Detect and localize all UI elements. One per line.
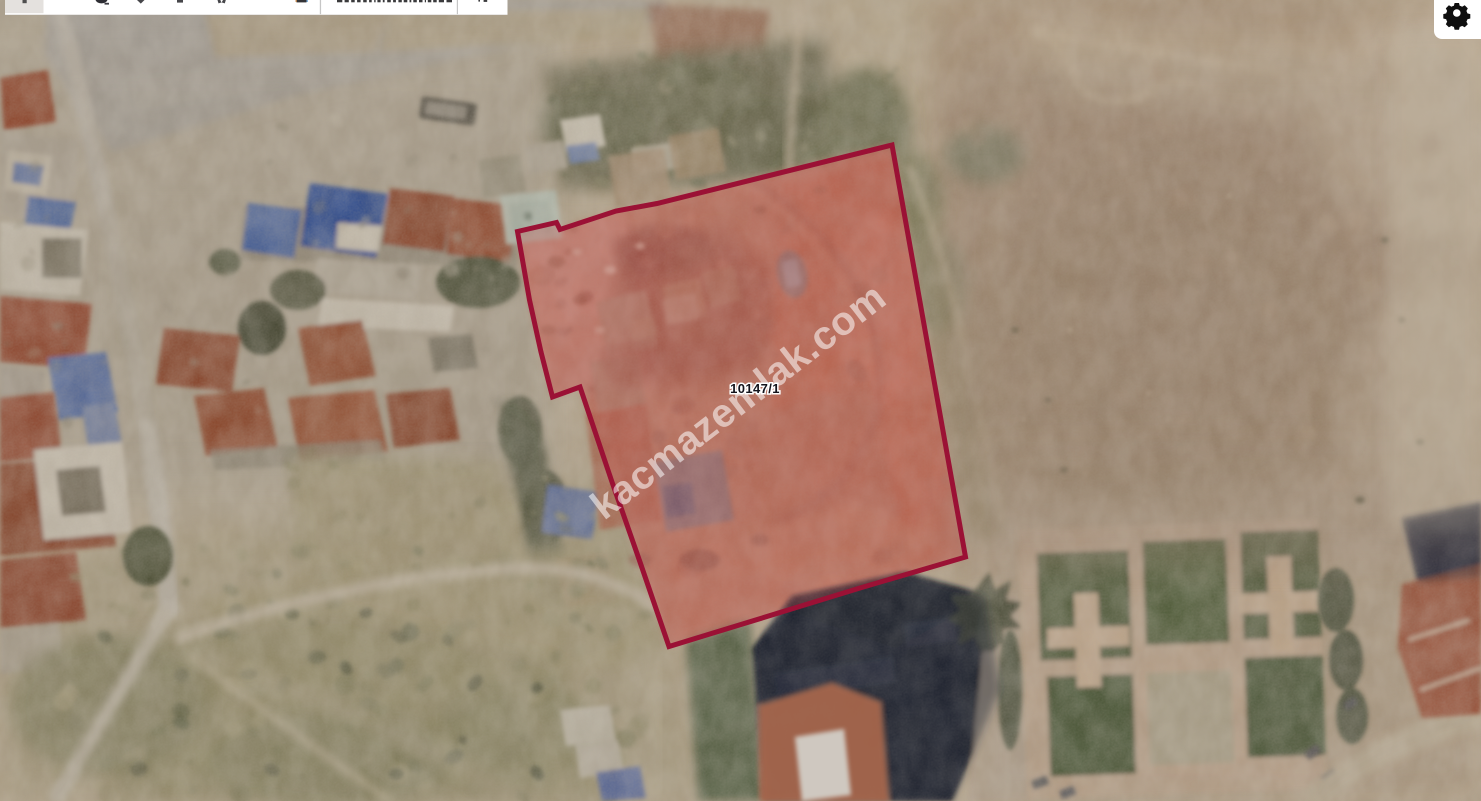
svg-text:10147/1: 10147/1 bbox=[730, 381, 780, 396]
